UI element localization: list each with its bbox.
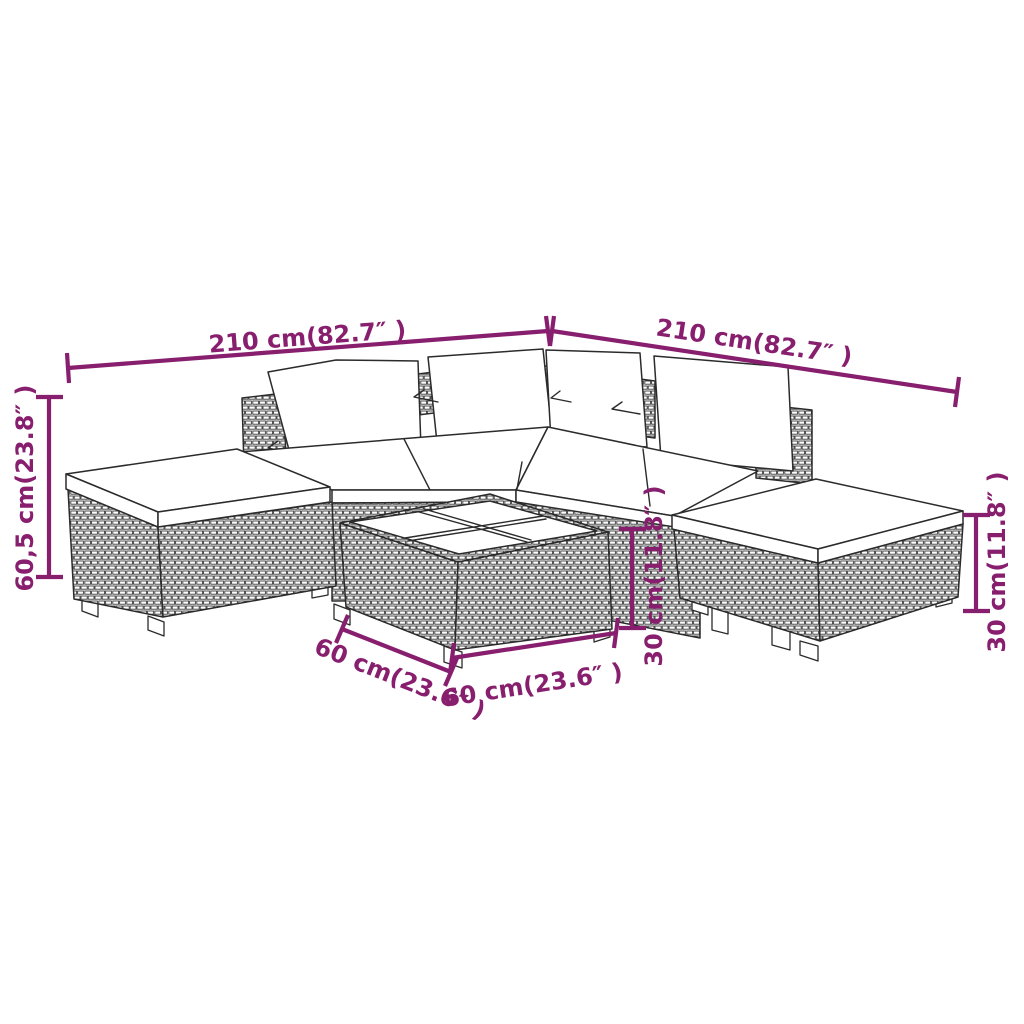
dimension-label-table-height: 30 cm(11.8″ )	[640, 485, 668, 666]
ottoman-leg	[800, 641, 818, 661]
furniture-illustration: 210 cm(82.7″ ) 210 cm(82.7″ ) 60,5 cm(23…	[0, 0, 1024, 1024]
dimension-label-footstool-height: 30 cm(11.8″ )	[983, 471, 1011, 652]
dimension-label-sofa-height: 60,5 cm(23.8″ )	[11, 384, 39, 591]
right-ottoman	[672, 479, 963, 661]
dimension-label-table-width: 60 cm(23.6″ )	[441, 658, 624, 713]
ottoman-leg	[148, 616, 164, 636]
dimension-label-sofa-left-width: 210 cm(82.7″ )	[208, 315, 407, 358]
left-ottoman	[66, 449, 336, 636]
dimension-sofa-height	[36, 397, 63, 577]
product-dimension-diagram: 210 cm(82.7″ ) 210 cm(82.7″ ) 60,5 cm(23…	[0, 0, 1024, 1024]
